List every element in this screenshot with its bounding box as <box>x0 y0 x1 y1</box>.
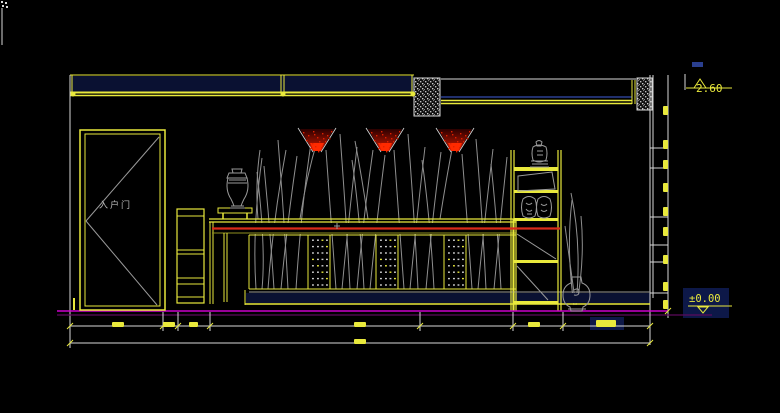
mesh-dot <box>453 252 455 253</box>
mesh-dot <box>390 272 392 273</box>
mesh-dot <box>322 265 324 266</box>
ceiling-marker <box>71 92 76 97</box>
mesh-dot <box>380 240 382 241</box>
mesh-dot <box>462 278 464 279</box>
mesh-dot <box>458 265 460 266</box>
ceiling-marker <box>411 92 416 97</box>
branch-line <box>426 152 441 289</box>
cone-speckle <box>451 131 452 132</box>
mesh-dot <box>385 272 387 273</box>
branch-line <box>440 144 453 219</box>
door-label: 入户门 <box>99 202 132 211</box>
mesh-dot <box>385 240 387 241</box>
mesh-dot <box>380 272 382 273</box>
mesh-dot <box>390 284 392 285</box>
dimension-text <box>663 207 668 216</box>
mesh-dot <box>322 278 324 279</box>
cone-speckle <box>460 133 461 134</box>
mesh-dot <box>462 272 464 273</box>
dimension-text <box>528 322 540 327</box>
mesh-dot <box>453 246 455 247</box>
cone-speckle <box>450 143 451 144</box>
branch-line <box>408 134 418 289</box>
filled-region <box>692 62 703 67</box>
mesh-dot <box>385 252 387 253</box>
mesh-dot <box>462 284 464 285</box>
mesh-dot <box>394 265 396 266</box>
mesh-dot <box>448 265 450 266</box>
branch-line <box>355 141 368 219</box>
mesh-dot <box>453 265 455 266</box>
cad-solid <box>2 5 4 7</box>
mesh-dot <box>326 265 328 266</box>
mesh-dot <box>385 284 387 285</box>
cone-speckle <box>376 135 377 136</box>
cone-speckle <box>395 135 396 136</box>
cad-rect <box>177 209 204 303</box>
mesh-dot <box>385 246 387 247</box>
mesh-dot <box>326 284 328 285</box>
mesh-dot <box>448 272 450 273</box>
cone-speckle <box>456 151 457 152</box>
cone-speckle <box>306 140 307 141</box>
mesh-dot <box>458 278 460 279</box>
panel-mask <box>376 236 398 289</box>
mesh-dot <box>312 246 314 247</box>
mesh-dot <box>462 252 464 253</box>
mesh-dot <box>453 272 455 273</box>
mesh-dot <box>322 259 324 260</box>
mesh-dot <box>390 252 392 253</box>
dimension-text <box>663 183 668 192</box>
cone-speckle <box>313 131 314 132</box>
mesh-dot <box>448 240 450 241</box>
mesh-dot <box>385 278 387 279</box>
cone-speckle <box>393 141 394 142</box>
cone-speckle <box>444 140 445 141</box>
mesh-dot <box>317 278 319 279</box>
mesh-dot <box>312 278 314 279</box>
panel-mask <box>444 236 466 289</box>
mesh-dot <box>453 259 455 260</box>
mesh-dot <box>394 240 396 241</box>
dimension-text <box>663 160 668 169</box>
mesh-dot <box>390 278 392 279</box>
mesh-dot <box>380 246 382 247</box>
mesh-dot <box>453 284 455 285</box>
mesh-dot <box>394 278 396 279</box>
cone-speckle <box>371 132 372 133</box>
mesh-dot <box>448 259 450 260</box>
ornament-outline <box>522 197 537 219</box>
cone-speckle <box>397 138 398 139</box>
cone-speckle <box>389 147 390 148</box>
mesh-dot <box>462 265 464 266</box>
mesh-dot <box>380 278 382 279</box>
cone-speckle <box>315 146 316 147</box>
mesh-dot <box>458 246 460 247</box>
level-marker-top-value: 2.60 <box>696 83 723 94</box>
mesh-dot <box>326 252 328 253</box>
mesh-dot <box>322 272 324 273</box>
mesh-dot <box>458 259 460 260</box>
mesh-dot <box>312 272 314 273</box>
dimension-text <box>354 322 366 327</box>
cone-speckle <box>380 143 381 144</box>
cone-speckle <box>327 135 328 136</box>
hatch-block <box>414 78 440 116</box>
mesh-dot <box>462 240 464 241</box>
ornament-outline <box>232 169 242 173</box>
mesh-dot <box>390 259 392 260</box>
mesh-dot <box>312 284 314 285</box>
cad-poly <box>518 172 555 191</box>
cad-solid <box>514 301 558 304</box>
mesh-dot <box>317 246 319 247</box>
cone-speckle <box>463 141 464 142</box>
dimension-text <box>112 322 124 327</box>
dimension-text <box>663 227 668 236</box>
cone-speckle <box>385 137 386 138</box>
mesh-dot <box>312 252 314 253</box>
mesh-dot <box>458 284 460 285</box>
dimension-text <box>596 320 616 327</box>
cone-speckle <box>441 132 442 133</box>
cone-speckle <box>312 143 313 144</box>
mesh-dot <box>390 246 392 247</box>
cone-speckle <box>467 138 468 139</box>
ornament-outline <box>530 141 549 168</box>
cone-speckle <box>308 135 309 136</box>
mesh-dot <box>322 240 324 241</box>
cone-speckle <box>469 131 470 132</box>
level-marker-bottom-value: ±0.00 <box>689 294 721 305</box>
mesh-dot <box>448 246 450 247</box>
cad-line <box>86 221 157 305</box>
cone-speckle <box>319 141 320 142</box>
mesh-dot <box>458 252 460 253</box>
dimension-text <box>663 282 668 291</box>
cad-rect <box>218 208 252 213</box>
cone-speckle <box>378 148 379 149</box>
mesh-dot <box>462 246 464 247</box>
branch-line <box>340 134 350 289</box>
cone-speckle <box>399 131 400 132</box>
mesh-dot <box>380 284 382 285</box>
branch-line <box>565 226 575 300</box>
cone-speckle <box>461 138 462 139</box>
cone-speckle <box>321 147 322 148</box>
dimension-text <box>663 300 668 309</box>
cone-speckle <box>331 131 332 132</box>
panel-mask <box>308 236 330 289</box>
mesh-dot <box>326 278 328 279</box>
cad-rect <box>80 130 165 310</box>
cone-speckle <box>452 134 453 135</box>
mesh-dot <box>385 259 387 260</box>
cone-speckle <box>318 151 319 152</box>
ceiling-marker <box>281 92 286 97</box>
mesh-dot <box>380 252 382 253</box>
mesh-dot <box>322 252 324 253</box>
mesh-dot <box>326 272 328 273</box>
dimension-text <box>663 106 668 115</box>
cad-rect <box>85 134 160 306</box>
cone-speckle <box>457 141 458 142</box>
cone-speckle <box>446 135 447 136</box>
branch-line <box>342 147 357 289</box>
mesh-dot <box>380 259 382 260</box>
branch-line <box>476 139 486 289</box>
cone-speckle <box>381 131 382 132</box>
cone-speckle <box>374 140 375 141</box>
cad-solid <box>1 1 3 3</box>
mesh-dot <box>394 272 396 273</box>
mesh-dot <box>312 259 314 260</box>
cad-solid <box>6 6 8 8</box>
cone-speckle <box>386 151 387 152</box>
dimension-text <box>189 322 198 327</box>
cone-speckle <box>317 137 318 138</box>
filled-region <box>71 76 414 92</box>
mesh-dot <box>326 240 328 241</box>
dimension-text <box>354 339 366 344</box>
dimension-text <box>663 140 668 149</box>
mesh-dot <box>322 246 324 247</box>
mesh-dot <box>390 265 392 266</box>
mesh-dot <box>458 272 460 273</box>
cone-speckle <box>383 146 384 147</box>
mesh-dot <box>448 284 450 285</box>
cone-speckle <box>325 141 326 142</box>
mesh-dot <box>322 284 324 285</box>
mesh-dot <box>317 259 319 260</box>
cone-speckle <box>448 148 449 149</box>
mesh-dot <box>453 240 455 241</box>
mesh-dot <box>326 259 328 260</box>
cone-speckle <box>329 138 330 139</box>
mesh-dot <box>394 284 396 285</box>
mesh-dot <box>380 265 382 266</box>
cone-speckle <box>453 146 454 147</box>
mesh-dot <box>448 252 450 253</box>
mesh-dot <box>317 240 319 241</box>
cad-solid <box>514 167 558 171</box>
ornament-outline <box>537 197 552 219</box>
cad-solid <box>5 2 7 4</box>
cone-speckle <box>323 138 324 139</box>
cad-solid <box>514 260 558 263</box>
cone-speckle <box>391 138 392 139</box>
mesh-dot <box>394 246 396 247</box>
cone-speckle <box>382 134 383 135</box>
mesh-dot <box>394 252 396 253</box>
mesh-dot <box>453 278 455 279</box>
mesh-dot <box>394 259 396 260</box>
cone-speckle <box>303 132 304 133</box>
dimension-text <box>663 255 668 264</box>
mesh-dot <box>317 272 319 273</box>
mesh-dot <box>317 265 319 266</box>
cone-speckle <box>459 147 460 148</box>
cone-speckle <box>322 133 323 134</box>
cad-viewport: 2.60 ±0.00 入户门 <box>0 0 780 413</box>
mesh-dot <box>462 259 464 260</box>
cone-speckle <box>310 148 311 149</box>
cad-line <box>517 234 556 259</box>
mesh-dot <box>317 284 319 285</box>
mesh-dot <box>317 252 319 253</box>
mesh-dot <box>312 240 314 241</box>
cone-speckle <box>390 133 391 134</box>
cone-speckle <box>465 135 466 136</box>
mesh-dot <box>385 265 387 266</box>
cone-speckle <box>455 137 456 138</box>
cone-speckle <box>387 141 388 142</box>
cad-solid <box>514 218 558 221</box>
mesh-dot <box>312 265 314 266</box>
mesh-dot <box>390 240 392 241</box>
mesh-dot <box>326 246 328 247</box>
cone-speckle <box>314 134 315 135</box>
mesh-dot <box>458 240 460 241</box>
mesh-dot <box>448 278 450 279</box>
